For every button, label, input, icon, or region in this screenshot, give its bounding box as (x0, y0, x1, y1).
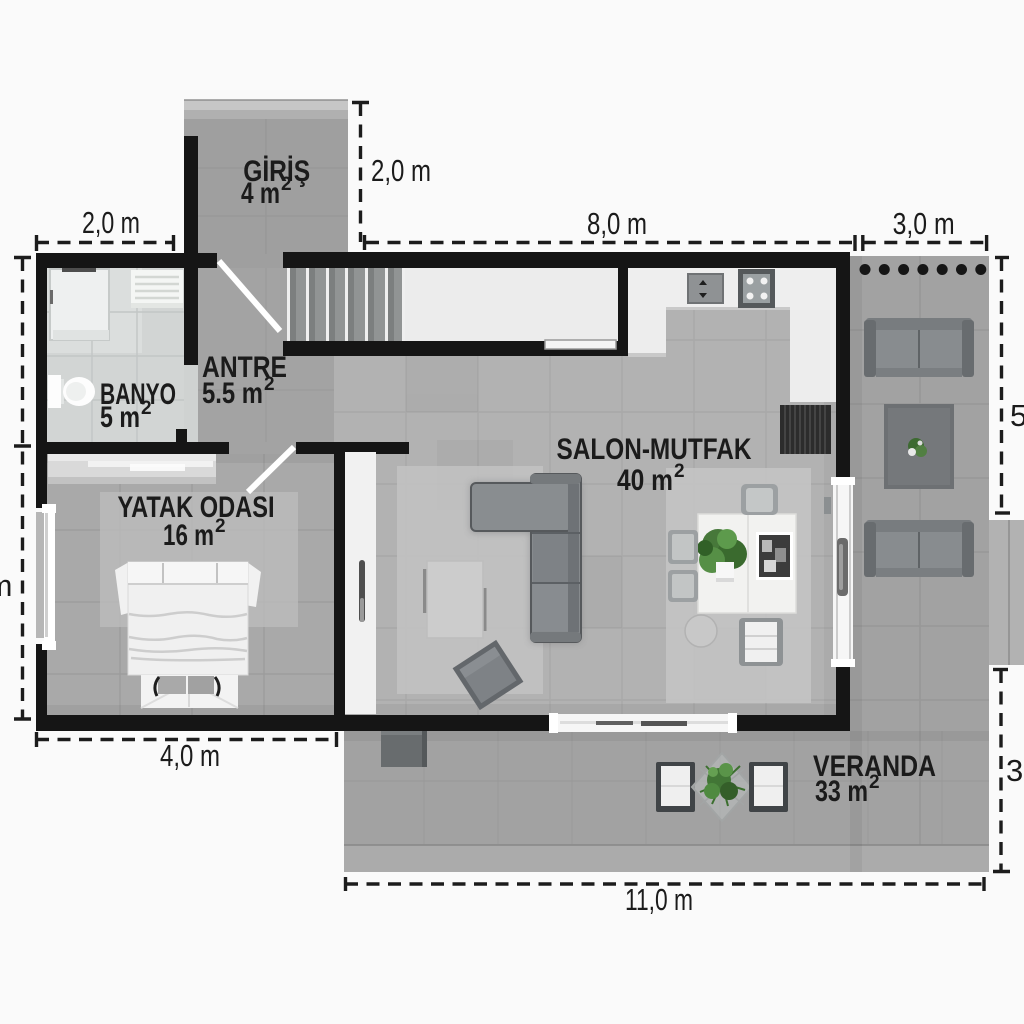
svg-text:SALON-MUTFAK: SALON-MUTFAK (557, 433, 752, 466)
svg-text:5 m: 5 m (100, 401, 140, 434)
svg-text:2,0 m: 2,0 m (82, 205, 140, 240)
svg-text:2: 2 (869, 772, 880, 793)
svg-text:m: m (0, 568, 13, 603)
svg-text:4,0 m: 4,0 m (160, 738, 220, 773)
svg-text:2: 2 (674, 461, 685, 482)
svg-text:33 m: 33 m (815, 775, 868, 808)
svg-text:2: 2 (264, 374, 275, 395)
svg-text:8,0 m: 8,0 m (587, 206, 647, 241)
svg-text:2: 2 (281, 174, 292, 195)
svg-text:3: 3 (1006, 753, 1023, 788)
svg-text:2: 2 (141, 398, 152, 419)
svg-text:3,0 m: 3,0 m (893, 206, 955, 241)
svg-text:2: 2 (215, 516, 226, 537)
svg-text:40 m: 40 m (617, 464, 673, 497)
svg-text:16 m: 16 m (163, 519, 214, 552)
svg-text:11,0 m: 11,0 m (625, 882, 693, 917)
svg-text:4 m: 4 m (241, 177, 280, 210)
svg-text:2,0 m: 2,0 m (371, 153, 431, 188)
svg-text:5.5 m: 5.5 m (202, 377, 263, 410)
svg-text:5: 5 (1010, 398, 1024, 433)
